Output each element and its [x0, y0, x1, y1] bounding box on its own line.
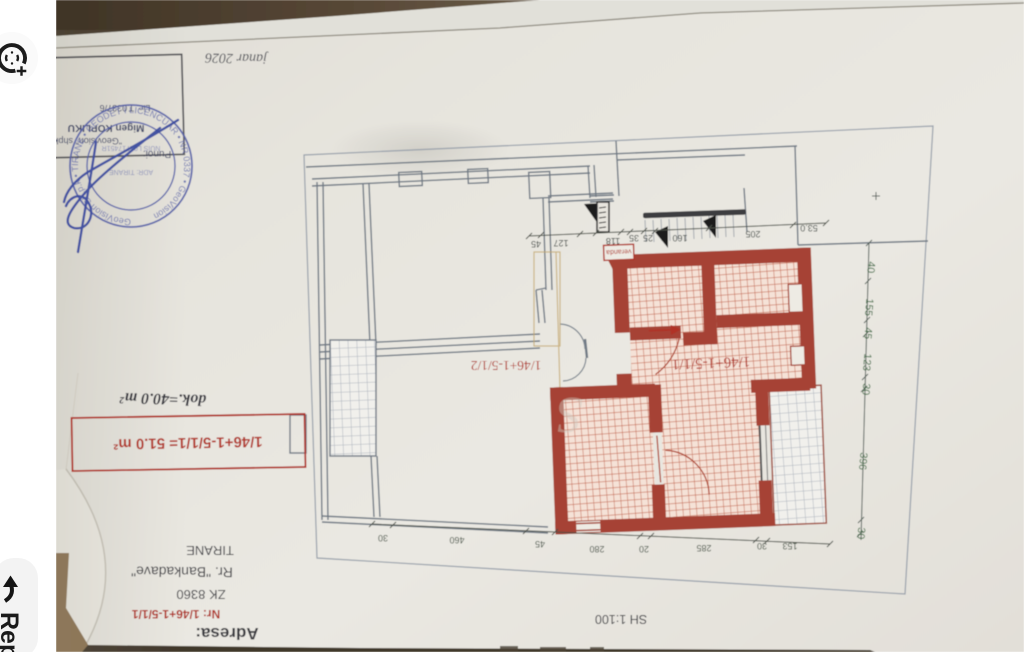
svg-text:396: 396 [856, 452, 869, 471]
svg-text:1/46+1-5/1/1: 1/46+1-5/1/1 [672, 353, 751, 372]
svg-text:Rep: Rep [0, 612, 23, 652]
svg-text:30: 30 [757, 541, 767, 551]
svg-text:ZK 8360: ZK 8360 [176, 587, 225, 602]
svg-text:dok.=40.0 m²: dok.=40.0 m² [118, 389, 206, 408]
svg-text:280: 280 [589, 544, 604, 554]
svg-text:155: 155 [862, 298, 875, 317]
svg-text:Rr. "Bankadave": Rr. "Bankadave" [131, 564, 233, 581]
svg-text:Adresa:: Adresa: [195, 624, 258, 643]
svg-text:118: 118 [606, 236, 620, 246]
svg-text:40: 40 [864, 261, 877, 274]
svg-text:160: 160 [672, 233, 687, 243]
svg-text:153: 153 [782, 541, 797, 551]
svg-text:30: 30 [854, 527, 867, 540]
svg-text:45: 45 [861, 327, 874, 340]
svg-text:127: 127 [553, 238, 568, 248]
svg-text:285: 285 [696, 543, 711, 553]
svg-text:30: 30 [859, 383, 872, 396]
svg-text:20: 20 [639, 544, 649, 554]
svg-text:1/46+1-5/1/2: 1/46+1-5/1/2 [471, 358, 542, 373]
svg-text:25: 25 [643, 233, 653, 243]
svg-text:30: 30 [378, 533, 388, 543]
svg-text:1/46+1-5/1/1= 51.0 m²: 1/46+1-5/1/1= 51.0 m² [113, 433, 263, 453]
svg-text:S: S [557, 386, 583, 443]
svg-text:123: 123 [860, 353, 873, 372]
svg-text:45: 45 [535, 539, 545, 549]
svg-text:460: 460 [449, 535, 464, 545]
svg-text:SH 1:100: SH 1:100 [595, 612, 647, 626]
svg-text:205: 205 [745, 229, 760, 239]
svg-text:45: 45 [531, 239, 541, 249]
svg-text:53.0: 53.0 [800, 223, 818, 233]
svg-text:Migen KOPLIKU: Migen KOPLIKU [68, 122, 145, 133]
svg-text:janar 2026: janar 2026 [205, 49, 269, 65]
svg-text:Nr: 1/46+1-5/1/1: Nr: 1/46+1-5/1/1 [131, 607, 220, 621]
svg-text:35: 35 [629, 233, 639, 243]
svg-text:veranda: veranda [606, 247, 632, 255]
svg-text:ADR: TIRANE: ADR: TIRANE [109, 168, 154, 175]
svg-text:TIRANE: TIRANE [186, 543, 234, 558]
